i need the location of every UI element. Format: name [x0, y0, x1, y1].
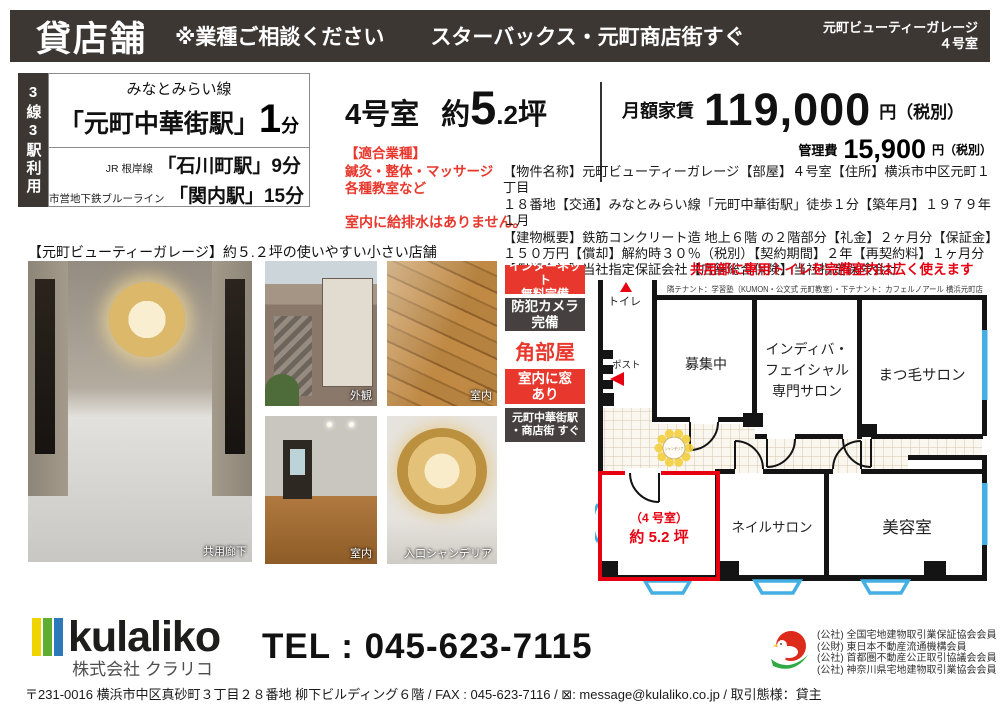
entrance-chandelier [397, 428, 487, 514]
membership-line-3: (公社) 首都圏不動産公正取引協議会会員 [817, 653, 996, 665]
flyer-page: 貸店舗 ※業種ご相談ください スターバックス・元町商店街すぐ 元町ビューティーガ… [0, 0, 1000, 708]
access-main-station-row: 「元町中華街駅」1分 [49, 99, 309, 148]
corridor-chandelier [109, 282, 185, 357]
photo-interior-floor: 室内 [387, 261, 497, 406]
photo-caption-exterior: 外観 [350, 387, 372, 403]
room-spotlight-2 [349, 422, 354, 427]
rent-line: 月額家賃 119,000 円（税別） [622, 84, 992, 136]
rent-label: 月額家賃 [622, 97, 694, 123]
details-line-2: １８番地【交通】みなとみらい線「元町中華街駅」徒歩１分【築年月】１９７９年１月 [503, 197, 998, 230]
badge-corner-room: 角部屋 [505, 335, 585, 365]
floorplan-label-unit4-size: 約 5.2 坪 [629, 528, 688, 546]
membership-list: (公社) 全国宅地建物取引業保証協会会員 (公財) 東日本不動産流通機構会員 (… [817, 630, 996, 676]
building-room-line2: ４号室 [939, 36, 978, 51]
floorplan-label-vacant: 募集中 [685, 356, 727, 372]
building-name: 元町ビューティーガレージ ４号室 [823, 20, 978, 52]
unit-size-prefix: 約 [441, 91, 470, 133]
logo-wordmark: kulaliko [68, 618, 220, 656]
access-sub1-station: 「石川町駅」9分 [157, 156, 301, 177]
phone-number: TEL : 045-623-7115 [262, 627, 593, 667]
floorplan-tenant-note: 隣テナント：学習塾（KUMON・公文式 元町教室）・下テナント：カフェルノアール… [667, 284, 983, 294]
floorplan-heading: 共用部に専用トイレを完備室内は広く使えます [690, 258, 974, 278]
floorplan-label-unit4-room: （4 号室） [630, 510, 688, 525]
floorplan-label-nail: ネイルサロン [732, 520, 813, 535]
room-door-window [290, 449, 306, 476]
photo-interior-room: 室内 [265, 416, 377, 564]
membership-line-4: (公社) 神奈川県宅地建物取引業協会会員 [817, 665, 996, 677]
management-fee-line: 管理費 15,900 円（税別） [622, 134, 992, 165]
photo-entrance-chandelier: 入口シャンデリア [387, 416, 497, 564]
photo-caption-corridor: 共用廊下 [203, 543, 247, 559]
pigeon-mark-icon [768, 629, 812, 675]
photo-common-corridor: 共用廊下 [28, 261, 252, 562]
corridor-door-1 [35, 279, 55, 454]
rent-unit: 円（税別） [879, 98, 964, 123]
floorplan-label-toilet: トイレ [608, 296, 641, 308]
floorplan-drawing: 隣テナント：学習塾（KUMON・公文式 元町教室）・下テナント：カフェルノアール… [595, 276, 997, 613]
floorplan: 隣テナント：学習塾（KUMON・公文式 元町教室）・下テナント：カフェルノアール… [595, 276, 997, 613]
company-logo: kulaliko [32, 618, 220, 656]
property-type-title: 貸店舗 [36, 11, 147, 62]
exterior-building [322, 278, 372, 387]
details-line-3: 【建物概要】鉄筋コンクリート造 地上６階 の２階部分【礼金】２ヶ月分【保証金】 [503, 230, 998, 246]
photo-exterior: 外観 [265, 261, 377, 406]
access-main-minutes: 1 [259, 97, 281, 141]
header-bar: 貸店舗 ※業種ご相談ください スターバックス・元町商店街すぐ 元町ビューティーガ… [10, 10, 990, 62]
realtor-association-emblem [768, 629, 812, 680]
unit-room-number: 4号室 [345, 91, 419, 133]
unit-size-decimal: .2 [496, 100, 518, 131]
management-fee-unit: 円（税別） [932, 141, 992, 158]
logo-bar-yellow [32, 618, 41, 656]
management-fee-label: 管理費 [798, 140, 837, 159]
access-rail-label: 3線3駅利用 [18, 73, 48, 207]
access-sub2-line: 市営地下鉄ブルーライン [49, 193, 165, 205]
badge-window: 室内に窓 あり [505, 369, 585, 404]
rent-amount: 119,000 [704, 84, 871, 136]
badge-free-internet: インターネット 無料完備 [505, 265, 585, 294]
floorplan-label-indiba-3: 専門サロン [772, 383, 842, 399]
details-line-1: 【物件名称】元町ビューティーガレージ【部屋】４号室【住所】横浜市中区元町１丁目 [503, 164, 998, 197]
header-subtitle: スターバックス・元町商店街すぐ [430, 21, 744, 51]
floorplan-label-indiba-1: インディバ・ [765, 341, 848, 357]
toilet-arrow-icon [620, 282, 632, 292]
access-sub: JR 根岸線 「石川町駅」9分 市営地下鉄ブルーライン 「関内駅」15分 [49, 148, 309, 213]
floorplan-label-beauty: 美容室 [882, 518, 932, 537]
corridor-door-2 [225, 279, 245, 454]
room-spotlight-1 [327, 422, 332, 427]
access-main-line: みなとみらい線 [49, 78, 309, 99]
access-main-min-suffix: 分 [281, 116, 299, 136]
photos-section-title: 【元町ビューティーガレージ】約５.２坪の使いやすい小さい店舗 [28, 242, 437, 262]
building-name-line1: 元町ビューティーガレージ [823, 20, 978, 35]
management-fee-amount: 15,900 [843, 134, 926, 165]
logo-bar-blue [54, 618, 63, 656]
logo-bar-green [43, 618, 52, 656]
access-main: みなとみらい線 「元町中華街駅」1分 [49, 74, 309, 148]
membership-line-1: (公社) 全国宅地建物取引業保証協会会員 [817, 630, 996, 642]
floorplan-label-matsuge: まつ毛サロン [879, 367, 966, 384]
unit-title: 4号室 約 5 .2 坪 [345, 80, 595, 135]
header-note: ※業種ご相談ください [175, 21, 384, 51]
badge-security-camera: 防犯カメラ 完備 [505, 298, 585, 331]
unit-size-unit: 坪 [518, 91, 547, 133]
photo-caption-chandelier: 入口シャンデリア [404, 545, 492, 561]
chandelier-label: シャンデリア [665, 445, 684, 452]
floorplan-label-indiba-2: フェイシャル [765, 362, 849, 378]
photo-caption-interior-1: 室内 [470, 387, 492, 403]
exterior-bush [265, 374, 299, 406]
wood-floor-highlight [387, 261, 497, 406]
floorplan-label-post: ポスト [612, 360, 641, 371]
rent-block: 月額家賃 119,000 円（税別） 管理費 15,900 円（税別） [622, 84, 992, 165]
access-sub-row-2: 市営地下鉄ブルーライン 「関内駅」15分 [49, 183, 301, 213]
photo-caption-interior-2: 室内 [350, 545, 372, 561]
address-line: 〒231-0016 横浜市中区真砂町３丁目２８番地 柳下ビルディング６階 / F… [25, 684, 822, 703]
company-name: 株式会社 クラリコ [60, 655, 225, 680]
membership-line-2: (公財) 東日本不動産流通機構会員 [817, 642, 996, 654]
access-main-station: 「元町中華街駅」 [59, 110, 259, 138]
access-sub1-line: JR 根岸線 [106, 163, 153, 175]
access-box: みなとみらい線 「元町中華街駅」1分 JR 根岸線 「石川町駅」9分 市営地下鉄… [48, 73, 310, 207]
access-sub2-station: 「関内駅」15分 [169, 186, 304, 207]
unit-size-value: 5 [470, 80, 496, 135]
access-sub-row-1: JR 根岸線 「石川町駅」9分 [49, 153, 301, 183]
badge-near-station: 元町中華街駅 ・商店街 すぐ [505, 408, 585, 442]
